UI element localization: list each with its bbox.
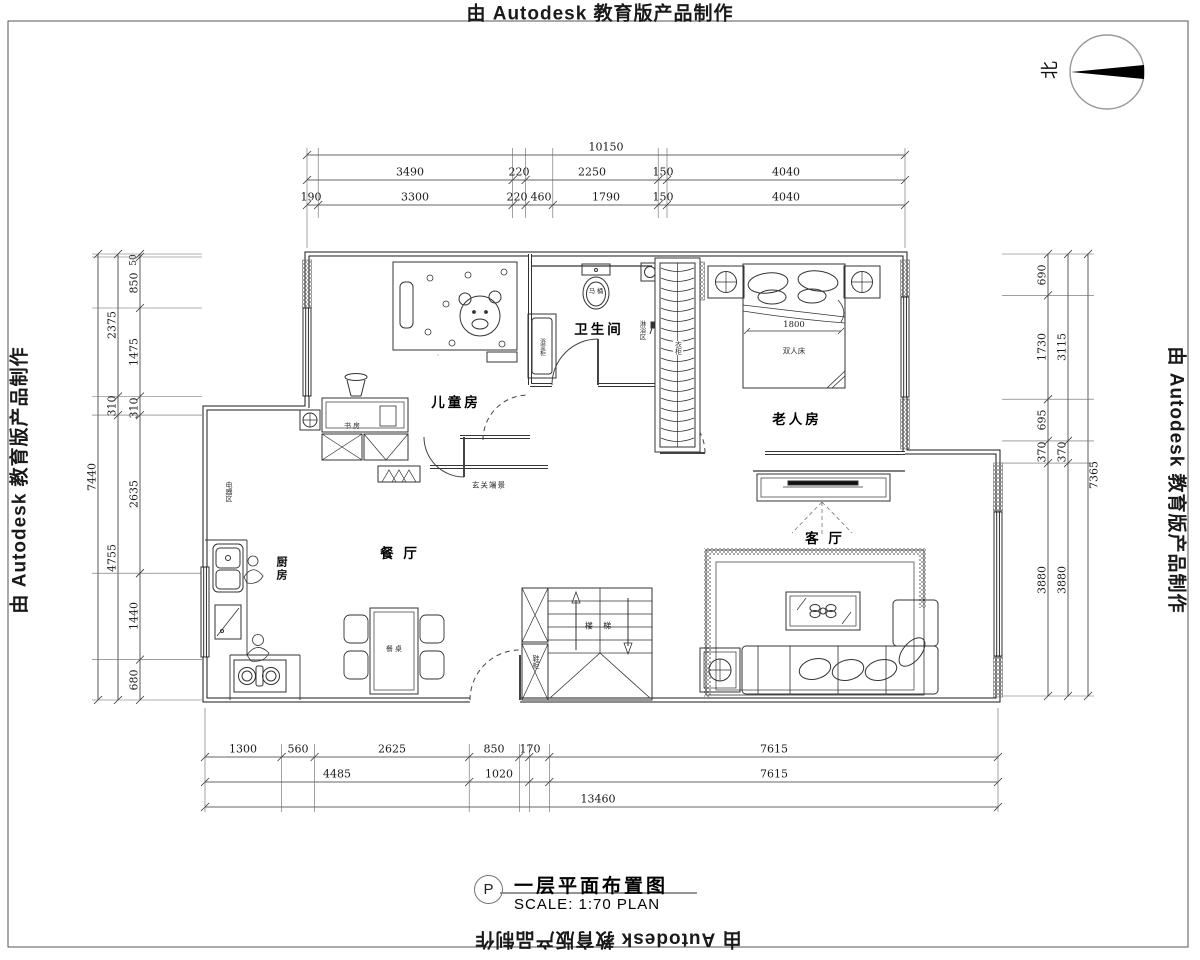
room-label-kitchen: 厨房 xyxy=(273,556,289,582)
study-desk xyxy=(322,374,408,433)
floorplan-page: 由 Autodesk 教育版产品制作 由 Autodesk 教育版产品制作 由 … xyxy=(0,0,1200,960)
dim-right-mid-1: 370 xyxy=(1056,442,1069,463)
appliance-area-label: 电器区 xyxy=(223,482,233,503)
dim-left-inner-1: 850 xyxy=(128,273,141,294)
stamp-top: 由 Autodesk 教育版产品制作 xyxy=(466,0,733,26)
wardrobe-cabinet xyxy=(655,258,700,452)
page-scale: SCALE: 1:70 PLAN xyxy=(514,896,660,913)
dim-top-r3-0: 190 xyxy=(301,191,322,204)
bed-width-dim: 1800 xyxy=(783,320,805,330)
dim-right-inner-2: 695 xyxy=(1036,410,1049,431)
dim-bottom-r1-4: 170 xyxy=(520,743,541,756)
dim-right-inner-3: 370 xyxy=(1036,442,1049,463)
nightstand-right xyxy=(844,266,880,298)
dim-bottom-r1-1: 560 xyxy=(288,743,309,756)
room-label-bathroom: 卫生间 xyxy=(574,318,624,338)
dim-top-r3-1: 3300 xyxy=(401,191,429,204)
dim-left-inner-0: 50 xyxy=(129,254,139,265)
dimension-lines xyxy=(92,148,1094,812)
dim-left-mid-2: 4755 xyxy=(106,544,119,572)
nightstand-left xyxy=(708,266,744,298)
north-arrow-icon xyxy=(1071,65,1144,79)
dim-top-r3-3: 460 xyxy=(531,191,552,204)
dining-table-label: 餐 桌 xyxy=(386,644,402,654)
window-children-left xyxy=(303,308,311,396)
stairs-label: 楼 梯 xyxy=(585,621,615,632)
plan-tag: P xyxy=(483,881,493,898)
dim-left-inner-4: 2635 xyxy=(128,480,141,508)
page-title: 一层平面布置图 xyxy=(514,871,668,898)
dim-top-r3-5: 150 xyxy=(653,191,674,204)
window-elderly-right xyxy=(901,297,909,397)
stairs-down-arrow xyxy=(624,598,632,654)
dim-bottom-r1-3: 850 xyxy=(484,743,505,756)
dim-left-mid-0: 2375 xyxy=(106,311,119,339)
entry-door xyxy=(470,650,520,700)
bath-cabinet-label: 浴室柜 xyxy=(538,338,547,356)
dim-right-inner-0: 690 xyxy=(1036,265,1049,286)
window-living-right xyxy=(994,512,1002,656)
children-bed xyxy=(393,262,517,362)
plan-tag-circle: P xyxy=(474,875,503,904)
room-label-dining: 餐 厅 xyxy=(380,542,420,562)
north-compass xyxy=(1070,35,1144,109)
children-room-door xyxy=(424,437,464,477)
bathroom-door xyxy=(552,339,598,385)
dim-right-inner-4: 3880 xyxy=(1036,566,1049,594)
dim-bottom-r1-5: 7615 xyxy=(760,743,788,756)
dim-bottom-r2-1: 1020 xyxy=(485,768,513,781)
dim-bottom-r1-0: 1300 xyxy=(229,743,257,756)
gas-stove xyxy=(234,660,286,692)
kitchen-sink xyxy=(213,544,243,592)
children-room-furniture xyxy=(300,262,517,482)
ac-unit xyxy=(300,410,320,430)
wardrobe-label: 衣柜 xyxy=(673,341,683,355)
stamp-bottom: 由 Autodesk 教育版产品制作 xyxy=(474,928,741,955)
shoe-cabinet-label: 鞋柜 xyxy=(530,655,540,669)
dim-top-r2-4: 4040 xyxy=(772,166,800,179)
hall-door-swing xyxy=(483,395,528,440)
dim-top-r2-1: 220 xyxy=(509,166,530,179)
shoe-cabinet-box xyxy=(522,588,548,700)
stairs-up-arrow xyxy=(572,592,580,650)
dim-top-r3-6: 4040 xyxy=(772,191,800,204)
toilet-label: 马 桶 xyxy=(589,285,604,295)
shower-area-label: 淋浴区 xyxy=(636,320,646,340)
dim-right-inner-1: 1730 xyxy=(1036,333,1049,361)
tv-cabinet xyxy=(757,474,890,501)
dim-right-total: 7365 xyxy=(1088,461,1101,489)
hall-cabinets xyxy=(322,434,420,482)
living-room-furniture xyxy=(700,474,938,697)
double-bed-label: 双人床 xyxy=(783,346,806,357)
window-kitchen-left xyxy=(201,567,209,657)
person-figure-2 xyxy=(247,635,269,662)
room-label-children: 儿童房 xyxy=(431,391,481,411)
stamp-left: 由 Autodesk 教育版产品制作 xyxy=(5,346,32,613)
dim-bottom-total: 13460 xyxy=(581,793,616,806)
sofa xyxy=(742,600,938,694)
dim-top-total: 10150 xyxy=(589,141,624,154)
stamp-right: 由 Autodesk 教育版产品制作 xyxy=(1165,346,1192,613)
study-label: 书 房 xyxy=(344,421,360,431)
stamp-border xyxy=(8,21,1188,947)
dim-top-r3-2: 220 xyxy=(507,191,528,204)
dim-right-mid-2: 3880 xyxy=(1056,566,1069,594)
dim-top-r3-4: 1790 xyxy=(592,191,620,204)
dim-bottom-r2-2: 7615 xyxy=(760,768,788,781)
dim-left-inner-3: 310 xyxy=(128,398,141,419)
dim-left-inner-2: 1475 xyxy=(128,338,141,366)
entry-view-label: 玄关端景 xyxy=(472,480,506,491)
dim-top-r2-3: 150 xyxy=(653,166,674,179)
dim-bottom-r2-0: 4485 xyxy=(323,768,351,781)
dim-right-mid-0: 3115 xyxy=(1056,333,1069,361)
dim-left-total: 7440 xyxy=(86,463,99,491)
stairs xyxy=(522,588,652,700)
cutting-board xyxy=(215,605,241,639)
room-label-elderly: 老人房 xyxy=(772,408,822,428)
windows xyxy=(201,297,1002,657)
dim-left-inner-6: 680 xyxy=(128,670,141,691)
coffee-table xyxy=(786,592,860,630)
dim-bottom-r1-2: 2625 xyxy=(378,743,406,756)
room-label-living: 客 厅 xyxy=(805,527,845,547)
dim-top-r2-0: 3490 xyxy=(396,166,424,179)
dim-left-mid-1: 310 xyxy=(106,396,119,417)
north-label: 北 xyxy=(1036,61,1062,79)
dim-left-inner-5: 1440 xyxy=(128,602,141,630)
dim-top-r2-2: 2250 xyxy=(578,166,606,179)
